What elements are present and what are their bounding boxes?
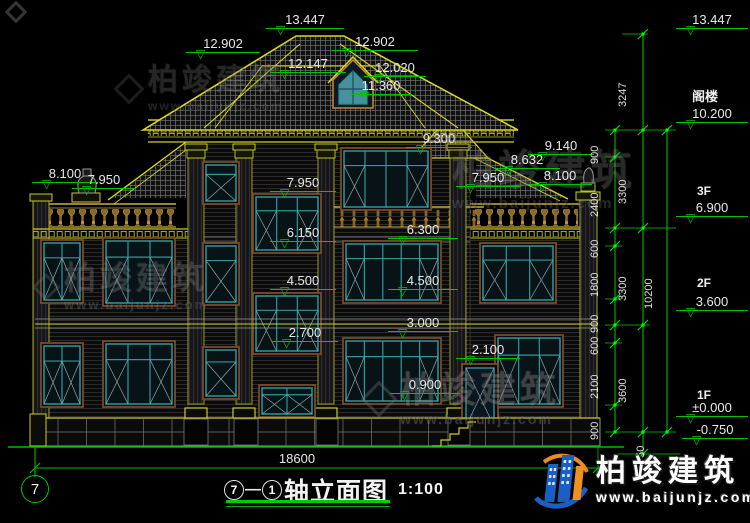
floor-label-2f: 2F <box>697 276 711 290</box>
brand-name: 柏竣建筑 <box>596 457 750 487</box>
elevation-mark: 12.147▽ <box>270 56 346 73</box>
elevation-value: 8.632 <box>511 152 544 167</box>
right-level-mark: 10.200▽ <box>676 106 748 123</box>
window <box>103 341 175 407</box>
level-value: 10.200 <box>692 106 732 121</box>
level-triangle-icon: ▽ <box>692 435 701 446</box>
level-triangle-icon: ▽ <box>538 181 547 192</box>
brand-url: www.baijunjz.com <box>596 490 750 504</box>
axis-number: 7 <box>31 481 39 498</box>
title-underline <box>226 500 390 503</box>
elevation-mark: 4.500▽ <box>270 273 336 290</box>
window <box>103 238 175 306</box>
level-value: 6.900 <box>696 200 729 215</box>
elevation-mark: 13.447▽ <box>266 12 344 29</box>
elevation-value: 0.900 <box>409 377 442 392</box>
level-triangle-icon: ▽ <box>466 355 475 366</box>
level-triangle-icon: ▽ <box>466 183 475 194</box>
axis-circle-end: 1 <box>262 480 282 500</box>
level-triangle-icon: ▽ <box>280 286 289 297</box>
level-triangle-icon: ▽ <box>42 179 51 190</box>
elevation-mark: 12.902▽ <box>186 36 260 53</box>
axis-bubble: 7 <box>21 475 49 503</box>
elevation-value: 12.902 <box>355 34 395 49</box>
elevation-mark: 12.902▽ <box>332 34 418 51</box>
elevation-mark: 0.900▽ <box>390 377 460 394</box>
elevation-mark: 11.360▽ <box>350 78 412 95</box>
level-triangle-icon: ▽ <box>400 390 409 401</box>
vdim: 3247 <box>618 83 629 107</box>
vdim: 2100 <box>590 375 601 399</box>
window <box>343 241 441 303</box>
title-underline-thin <box>226 506 390 507</box>
elevation-value: 2.100 <box>472 342 505 357</box>
window <box>480 243 556 303</box>
vdim: 900 <box>590 315 601 333</box>
level-triangle-icon: ▽ <box>280 69 289 80</box>
elevation-mark: 12.020▽ <box>364 60 426 77</box>
elevation-value: 12.147 <box>288 56 328 71</box>
floor-label-attic: 阁楼 <box>692 86 718 105</box>
right-level-mark: -0.750▽ <box>682 422 748 439</box>
level-triangle-icon: ▽ <box>686 25 695 36</box>
elevation-value: 2.700 <box>289 325 322 340</box>
overall-width-dim: 18600 <box>262 451 332 466</box>
elevation-value: 7.950 <box>287 175 320 190</box>
vdim: 2400 <box>590 193 601 217</box>
vdim: 3300 <box>618 277 629 301</box>
floor-label-3f: 3F <box>697 184 711 198</box>
vdim: 600 <box>590 337 601 355</box>
level-triangle-icon: ▽ <box>398 328 407 339</box>
window <box>41 240 83 303</box>
elevation-value: 7.950 <box>472 170 505 185</box>
level-triangle-icon: ▽ <box>398 235 407 246</box>
elevation-value: 4.500 <box>407 273 440 288</box>
elevation-value: 7.950 <box>88 172 121 187</box>
elevation-value: 13.447 <box>285 12 325 27</box>
elevation-mark: 9.300▽ <box>406 131 472 148</box>
level-triangle-icon: ▽ <box>360 91 369 102</box>
elevation-mark: 7.950▽ <box>456 170 520 187</box>
elevation-mark: 7.950▽ <box>72 172 136 189</box>
elevation-mark: 4.500▽ <box>388 273 458 290</box>
level-triangle-icon: ▽ <box>196 49 205 60</box>
vdim: 10200 <box>644 278 655 309</box>
elevation-mark: 7.950▽ <box>270 175 336 192</box>
level-triangle-icon: ▽ <box>276 25 285 36</box>
window <box>203 162 239 204</box>
elevation-value: 6.150 <box>287 225 320 240</box>
elevation-mark: 8.100▽ <box>528 168 592 185</box>
brand-logo: 柏竣建筑 www.baijunjz.com <box>532 448 750 512</box>
elevation-mark: 2.700▽ <box>272 325 338 342</box>
right-level-mark: 6.900▽ <box>676 200 748 217</box>
window <box>203 243 239 305</box>
vdim: 3300 <box>618 180 629 204</box>
level-triangle-icon: ▽ <box>282 338 291 349</box>
level-value: 3.600 <box>696 294 729 309</box>
right-level-mark: ±0.000▽ <box>676 400 748 417</box>
right-level-mark: 13.447▽ <box>676 12 748 29</box>
level-triangle-icon: ▽ <box>280 238 289 249</box>
axis-circle-start: 7 <box>224 480 244 500</box>
level-value: -0.750 <box>697 422 734 437</box>
brand-logo-icon <box>532 448 590 512</box>
elevation-mark: 6.300▽ <box>388 222 458 239</box>
window <box>343 338 441 404</box>
elevation-value: 6.300 <box>407 222 440 237</box>
vdim: 900 <box>590 422 601 440</box>
vdim: 3600 <box>618 379 629 403</box>
level-triangle-icon: ▽ <box>686 213 695 224</box>
level-triangle-icon: ▽ <box>398 286 407 297</box>
right-level-mark: 3.600▽ <box>676 294 748 311</box>
title-dash: — <box>245 481 261 499</box>
elevation-value: 8.100 <box>544 168 577 183</box>
window <box>259 385 315 417</box>
level-value: ±0.000 <box>692 400 732 415</box>
elevation-mark: 8.632▽ <box>494 152 560 169</box>
elevation-value: 3.000 <box>407 315 440 330</box>
level-triangle-icon: ▽ <box>82 185 91 196</box>
vdim: 900 <box>590 146 601 164</box>
level-triangle-icon: ▽ <box>280 188 289 199</box>
level-triangle-icon: ▽ <box>416 144 425 155</box>
level-triangle-icon: ▽ <box>686 119 695 130</box>
vdim: 600 <box>590 240 601 258</box>
level-triangle-icon: ▽ <box>686 307 695 318</box>
elevation-value: 12.902 <box>203 36 243 51</box>
window <box>341 148 431 210</box>
elevation-value: 9.140 <box>545 138 578 153</box>
elevation-mark: 2.100▽ <box>456 342 520 359</box>
window <box>203 347 239 399</box>
vdim: 1800 <box>590 273 601 297</box>
cad-elevation-screenshot: 柏竣建筑 www.baijunjz.com 柏竣建筑 www.baijunjz.… <box>0 0 750 523</box>
plinth <box>30 414 600 446</box>
window <box>41 343 83 407</box>
elevation-value: 9.300 <box>423 131 456 146</box>
elevation-mark: 6.150▽ <box>270 225 336 242</box>
elevation-value: 4.500 <box>287 273 320 288</box>
elevation-mark: 3.000▽ <box>388 315 458 332</box>
left-pent-roof <box>112 144 186 198</box>
level-value: 13.447 <box>692 12 732 27</box>
title-scale: 1:100 <box>398 481 444 499</box>
